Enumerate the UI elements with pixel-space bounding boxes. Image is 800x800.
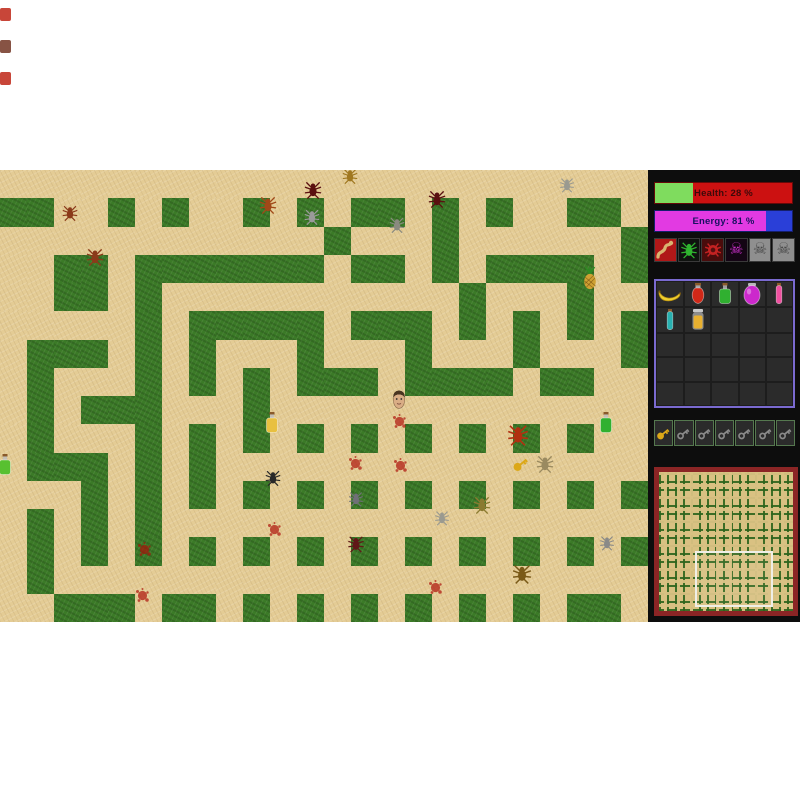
hedge-wall-cell	[621, 340, 648, 368]
sand-path-cell	[27, 481, 54, 509]
sand-path-cell	[513, 368, 540, 396]
spider-enemy[interactable]	[259, 196, 278, 215]
sand-path-cell	[162, 453, 189, 481]
hedge-wall-cell	[243, 368, 270, 396]
sand-path-cell	[243, 340, 270, 368]
hedge-wall-cell	[135, 481, 162, 509]
hedge-wall-cell	[405, 311, 432, 339]
hedge-wall-cell	[324, 368, 351, 396]
sand-path-cell	[621, 170, 648, 198]
sand-path-cell	[324, 396, 351, 424]
inventory-slot[interactable]	[766, 307, 793, 333]
sand-path-cell	[567, 453, 594, 481]
spider-enemy[interactable]	[473, 496, 492, 515]
spider-enemy[interactable]	[342, 170, 359, 185]
sand-path-cell	[0, 283, 27, 311]
hedge-wall-cell	[621, 255, 648, 283]
sand-path-cell	[540, 340, 567, 368]
inventory-item-vial[interactable]	[656, 307, 684, 333]
hedge-wall-cell	[459, 424, 486, 452]
sand-path-cell	[27, 255, 54, 283]
spider-enemy[interactable]	[512, 564, 533, 585]
sand-path-cell	[216, 566, 243, 594]
sand-path-cell	[81, 424, 108, 452]
hedge-wall-cell	[351, 424, 378, 452]
sand-path-cell	[27, 311, 54, 339]
red-spider-icon	[701, 238, 724, 262]
hedge-wall-cell	[81, 340, 108, 368]
hedge-wall-cell	[513, 594, 540, 622]
margin-mark	[0, 8, 11, 21]
hedge-wall-cell	[621, 227, 648, 255]
sand-path-cell	[432, 283, 459, 311]
sand-path-cell	[0, 424, 27, 452]
sand-path-cell	[270, 227, 297, 255]
sand-path-cell	[540, 424, 567, 452]
hedge-wall-cell	[54, 453, 81, 481]
hedge-wall-cell	[216, 255, 243, 283]
key-slot-empty	[715, 420, 734, 446]
sand-path-cell	[54, 424, 81, 452]
sand-path-cell	[54, 537, 81, 565]
sand-path-cell	[432, 311, 459, 339]
hedge-wall-cell	[108, 594, 135, 622]
sand-path-cell	[162, 481, 189, 509]
sand-path-cell	[216, 537, 243, 565]
sand-path-cell	[513, 227, 540, 255]
sand-path-cell	[567, 396, 594, 424]
sand-path-cell	[108, 481, 135, 509]
sand-path-cell	[459, 566, 486, 594]
sand-path-cell	[621, 594, 648, 622]
snake-icon	[654, 238, 677, 262]
potion-item[interactable]	[598, 411, 614, 435]
hedge-wall-cell	[54, 283, 81, 311]
hedge-wall-cell	[459, 368, 486, 396]
sand-path-cell	[486, 537, 513, 565]
sand-path-cell	[540, 566, 567, 594]
hedge-wall-cell	[189, 255, 216, 283]
sand-path-cell	[486, 283, 513, 311]
sand-path-cell	[459, 340, 486, 368]
hedge-wall-cell	[405, 537, 432, 565]
sand-path-cell	[486, 453, 513, 481]
energy-bar: Energy: 81 %	[654, 210, 793, 232]
hedge-wall-cell	[405, 594, 432, 622]
hedge-wall-cell	[432, 227, 459, 255]
hedge-wall-cell	[243, 311, 270, 339]
sand-path-cell	[297, 283, 324, 311]
sand-path-cell	[351, 283, 378, 311]
sand-path-cell	[0, 227, 27, 255]
sand-path-cell	[27, 594, 54, 622]
sand-path-cell	[378, 283, 405, 311]
hedge-wall-cell	[135, 396, 162, 424]
purple-skull-icon: ☠	[725, 238, 748, 262]
hedge-wall-cell	[459, 594, 486, 622]
hedge-wall-cell	[513, 537, 540, 565]
sand-path-cell	[486, 311, 513, 339]
sand-path-cell	[540, 396, 567, 424]
hedge-wall-cell	[405, 368, 432, 396]
hedge-wall-cell	[135, 311, 162, 339]
inventory-slot[interactable]	[711, 333, 738, 357]
hedge-wall-cell	[81, 594, 108, 622]
sand-path-cell	[0, 594, 27, 622]
sand-path-cell	[54, 396, 81, 424]
hedge-wall-cell	[351, 198, 378, 226]
key-slot-empty	[755, 420, 774, 446]
sand-path-cell	[0, 537, 27, 565]
blood-splatter	[427, 579, 446, 598]
sand-path-cell	[594, 340, 621, 368]
inventory-slot[interactable]	[684, 382, 711, 406]
sand-path-cell	[594, 170, 621, 198]
spider-enemy[interactable]	[304, 181, 323, 200]
inventory-slot[interactable]	[766, 357, 793, 381]
hedge-wall-cell	[189, 424, 216, 452]
inventory-slot[interactable]	[739, 357, 766, 381]
sand-path-cell	[27, 170, 54, 198]
sand-path-cell	[81, 198, 108, 226]
sand-path-cell	[162, 311, 189, 339]
sand-path-cell	[81, 170, 108, 198]
sand-path-cell	[54, 509, 81, 537]
hedge-wall-cell	[216, 311, 243, 339]
hedge-wall-cell	[135, 283, 162, 311]
sand-path-cell	[0, 340, 27, 368]
sand-path-cell	[324, 311, 351, 339]
hedge-wall-cell	[324, 227, 351, 255]
sand-path-cell	[108, 340, 135, 368]
spider-enemy[interactable]	[86, 248, 105, 267]
hedge-wall-cell	[297, 311, 324, 339]
health-bar: Health: 28 %	[654, 182, 793, 204]
hedge-wall-cell	[27, 396, 54, 424]
sand-path-cell	[459, 198, 486, 226]
spider-enemy[interactable]	[507, 424, 530, 447]
sand-path-cell	[189, 227, 216, 255]
sand-path-cell	[216, 453, 243, 481]
hedge-wall-cell	[351, 368, 378, 396]
sand-path-cell	[108, 227, 135, 255]
inventory-slot[interactable]	[739, 333, 766, 357]
sand-path-cell	[432, 396, 459, 424]
sand-path-cell	[27, 283, 54, 311]
sand-path-cell	[378, 340, 405, 368]
spider-enemy[interactable]	[559, 177, 575, 193]
sand-path-cell	[540, 537, 567, 565]
sand-path-cell	[297, 509, 324, 537]
sand-path-cell	[108, 509, 135, 537]
key-slot-empty	[674, 420, 693, 446]
inventory-item-bottle[interactable]	[711, 281, 738, 307]
sand-path-cell	[108, 283, 135, 311]
blood-splatter	[347, 455, 366, 474]
sand-path-cell	[621, 453, 648, 481]
sand-path-cell	[216, 170, 243, 198]
sand-path-cell	[621, 424, 648, 452]
sand-path-cell	[513, 283, 540, 311]
sand-path-cell	[459, 227, 486, 255]
hedge-wall-cell	[189, 311, 216, 339]
purple-skull-icon: ☠	[729, 242, 743, 258]
hedge-wall-cell	[432, 255, 459, 283]
sand-path-cell	[594, 481, 621, 509]
spider-enemy[interactable]	[434, 510, 450, 526]
pineapple-item[interactable]	[582, 266, 599, 290]
hedge-wall-cell	[513, 340, 540, 368]
inventory-item-jar[interactable]	[739, 281, 766, 307]
sand-path-cell	[432, 340, 459, 368]
sand-path-cell	[81, 311, 108, 339]
sand-path-cell	[270, 340, 297, 368]
sand-path-cell	[216, 396, 243, 424]
sand-path-cell	[378, 566, 405, 594]
health-label: Health: 28 %	[655, 183, 792, 203]
hedge-wall-cell	[567, 481, 594, 509]
spider-enemy[interactable]	[428, 190, 447, 209]
hedge-wall-cell	[81, 537, 108, 565]
sand-path-cell	[459, 170, 486, 198]
spider-enemy[interactable]	[599, 535, 615, 551]
energy-label: Energy: 81 %	[655, 211, 792, 231]
player-character[interactable]	[392, 389, 407, 409]
blood-splatter	[392, 457, 411, 476]
sand-path-cell	[189, 566, 216, 594]
sand-path-cell	[162, 396, 189, 424]
hedge-wall-cell	[297, 424, 324, 452]
sand-path-cell	[270, 170, 297, 198]
inventory-slot[interactable]	[739, 307, 766, 333]
sand-path-cell	[324, 424, 351, 452]
key-slot-collected	[654, 420, 673, 446]
inventory-slot[interactable]	[684, 357, 711, 381]
sand-path-cell	[513, 509, 540, 537]
inventory-item-vial[interactable]	[766, 281, 793, 307]
sand-path-cell	[324, 198, 351, 226]
sand-path-cell	[567, 227, 594, 255]
hedge-wall-cell	[405, 481, 432, 509]
spider-enemy[interactable]	[304, 209, 321, 226]
sand-path-cell	[189, 509, 216, 537]
hedge-wall-cell	[135, 424, 162, 452]
hedge-wall-cell	[459, 283, 486, 311]
sand-path-cell	[0, 368, 27, 396]
inventory-item-banana[interactable]	[656, 281, 684, 307]
sand-path-cell	[594, 509, 621, 537]
key-slot-empty	[776, 420, 795, 446]
hedge-wall-cell	[378, 255, 405, 283]
hedge-wall-cell	[297, 594, 324, 622]
sand-path-cell	[540, 594, 567, 622]
inventory-slot[interactable]	[711, 382, 738, 406]
sand-path-cell	[405, 255, 432, 283]
spider-enemy[interactable]	[536, 455, 555, 474]
sand-path-cell	[432, 481, 459, 509]
sand-path-cell	[621, 283, 648, 311]
hedge-wall-cell	[378, 311, 405, 339]
hedge-wall-cell	[567, 594, 594, 622]
inventory-slot[interactable]	[766, 382, 793, 406]
hedge-wall-cell	[81, 453, 108, 481]
sand-path-cell	[459, 453, 486, 481]
inventory-slot[interactable]	[656, 357, 684, 381]
sand-path-cell	[378, 594, 405, 622]
spider-enemy[interactable]	[389, 217, 406, 234]
sand-path-cell	[135, 170, 162, 198]
inventory-item-flask[interactable]	[684, 281, 711, 307]
sand-path-cell	[567, 509, 594, 537]
sand-path-cell	[378, 537, 405, 565]
inventory-slot[interactable]	[739, 382, 766, 406]
sand-path-cell	[594, 566, 621, 594]
hedge-wall-cell	[27, 368, 54, 396]
hedge-wall-cell	[243, 255, 270, 283]
sand-path-cell	[621, 566, 648, 594]
hedge-wall-cell	[54, 255, 81, 283]
sand-path-cell	[54, 170, 81, 198]
hedge-wall-cell	[297, 368, 324, 396]
inventory-slot[interactable]	[656, 382, 684, 406]
hedge-wall-cell	[540, 255, 567, 283]
sand-path-cell	[621, 368, 648, 396]
creature-status-row: ☠☠☠	[654, 238, 795, 262]
sand-path-cell	[567, 566, 594, 594]
sand-path-cell	[351, 396, 378, 424]
hedge-wall-cell	[27, 198, 54, 226]
sand-path-cell	[108, 537, 135, 565]
sand-path-cell	[270, 368, 297, 396]
sand-path-cell	[54, 227, 81, 255]
sand-path-cell	[351, 509, 378, 537]
sand-path-cell	[243, 283, 270, 311]
hedge-wall-cell	[81, 283, 108, 311]
inventory-slot[interactable]	[711, 357, 738, 381]
sand-path-cell	[324, 566, 351, 594]
inventory-slot[interactable]	[684, 333, 711, 357]
hedge-wall-cell	[540, 368, 567, 396]
sand-path-cell	[594, 227, 621, 255]
hedge-wall-cell	[54, 594, 81, 622]
sand-path-cell	[324, 509, 351, 537]
blood-splatter	[266, 521, 285, 540]
hedge-wall-cell	[81, 481, 108, 509]
sand-path-cell	[0, 396, 27, 424]
sand-path-cell	[0, 566, 27, 594]
hedge-wall-cell	[135, 255, 162, 283]
sand-path-cell	[108, 424, 135, 452]
sand-path-cell	[540, 509, 567, 537]
sand-path-cell	[216, 509, 243, 537]
margin-mark	[0, 72, 11, 85]
gold-key-item[interactable]	[511, 454, 531, 474]
hedge-wall-cell	[27, 537, 54, 565]
margin-mark	[0, 40, 11, 53]
potion-item[interactable]	[264, 411, 280, 435]
sand-path-cell	[621, 198, 648, 226]
sand-path-cell	[513, 396, 540, 424]
sand-path-cell	[216, 198, 243, 226]
sand-path-cell	[0, 481, 27, 509]
inventory-item-jar2[interactable]	[684, 307, 711, 333]
sand-path-cell	[0, 170, 27, 198]
hedge-wall-cell	[351, 255, 378, 283]
sand-path-cell	[54, 566, 81, 594]
sand-path-cell	[108, 311, 135, 339]
maze-viewport[interactable]	[0, 170, 648, 622]
potion-item[interactable]	[0, 453, 13, 477]
sand-path-cell	[432, 537, 459, 565]
sand-path-cell	[297, 396, 324, 424]
hedge-wall-cell	[513, 311, 540, 339]
sand-path-cell	[540, 481, 567, 509]
spider-enemy[interactable]	[348, 491, 364, 507]
hedge-wall-cell	[567, 537, 594, 565]
sand-path-cell	[0, 509, 27, 537]
spider-enemy[interactable]	[265, 470, 282, 487]
sand-path-cell	[486, 340, 513, 368]
hedge-wall-cell	[567, 311, 594, 339]
sand-path-cell	[432, 424, 459, 452]
sand-path-cell	[216, 424, 243, 452]
inventory-slot[interactable]	[766, 333, 793, 357]
key-slot-empty	[735, 420, 754, 446]
hedge-wall-cell	[189, 481, 216, 509]
sand-path-cell	[297, 453, 324, 481]
hedge-wall-cell	[27, 509, 54, 537]
hedge-wall-cell	[27, 424, 54, 452]
hedge-wall-cell	[567, 368, 594, 396]
game-window: Health: 28 % Energy: 81 % ☠☠☠	[0, 170, 800, 622]
sand-path-cell	[540, 198, 567, 226]
sand-path-cell	[459, 255, 486, 283]
hedge-wall-cell	[486, 368, 513, 396]
sand-path-cell	[432, 594, 459, 622]
inventory-slot[interactable]	[711, 307, 738, 333]
hedge-wall-cell	[81, 396, 108, 424]
hedge-wall-cell	[135, 509, 162, 537]
hedge-wall-cell	[432, 368, 459, 396]
hedge-wall-cell	[162, 255, 189, 283]
blood-splatter	[136, 541, 155, 560]
inventory-slot[interactable]	[656, 333, 684, 357]
sand-path-cell	[540, 283, 567, 311]
spider-enemy[interactable]	[347, 535, 365, 553]
sand-path-cell	[594, 311, 621, 339]
sand-path-cell	[216, 283, 243, 311]
hedge-wall-cell	[486, 255, 513, 283]
sand-path-cell	[189, 396, 216, 424]
green-spider-icon	[678, 238, 701, 262]
hedge-wall-cell	[54, 340, 81, 368]
sand-path-cell	[189, 283, 216, 311]
hedge-wall-cell	[27, 340, 54, 368]
sand-path-cell	[243, 227, 270, 255]
hedge-wall-cell	[27, 566, 54, 594]
sand-path-cell	[270, 537, 297, 565]
spider-enemy[interactable]	[62, 205, 79, 222]
hedge-wall-cell	[108, 396, 135, 424]
sand-path-cell	[54, 368, 81, 396]
sand-path-cell	[594, 368, 621, 396]
hedge-wall-cell	[459, 537, 486, 565]
sand-path-cell	[486, 566, 513, 594]
hedge-wall-cell	[297, 537, 324, 565]
minimap[interactable]	[654, 467, 798, 616]
sand-path-cell	[108, 368, 135, 396]
sand-path-cell	[297, 227, 324, 255]
